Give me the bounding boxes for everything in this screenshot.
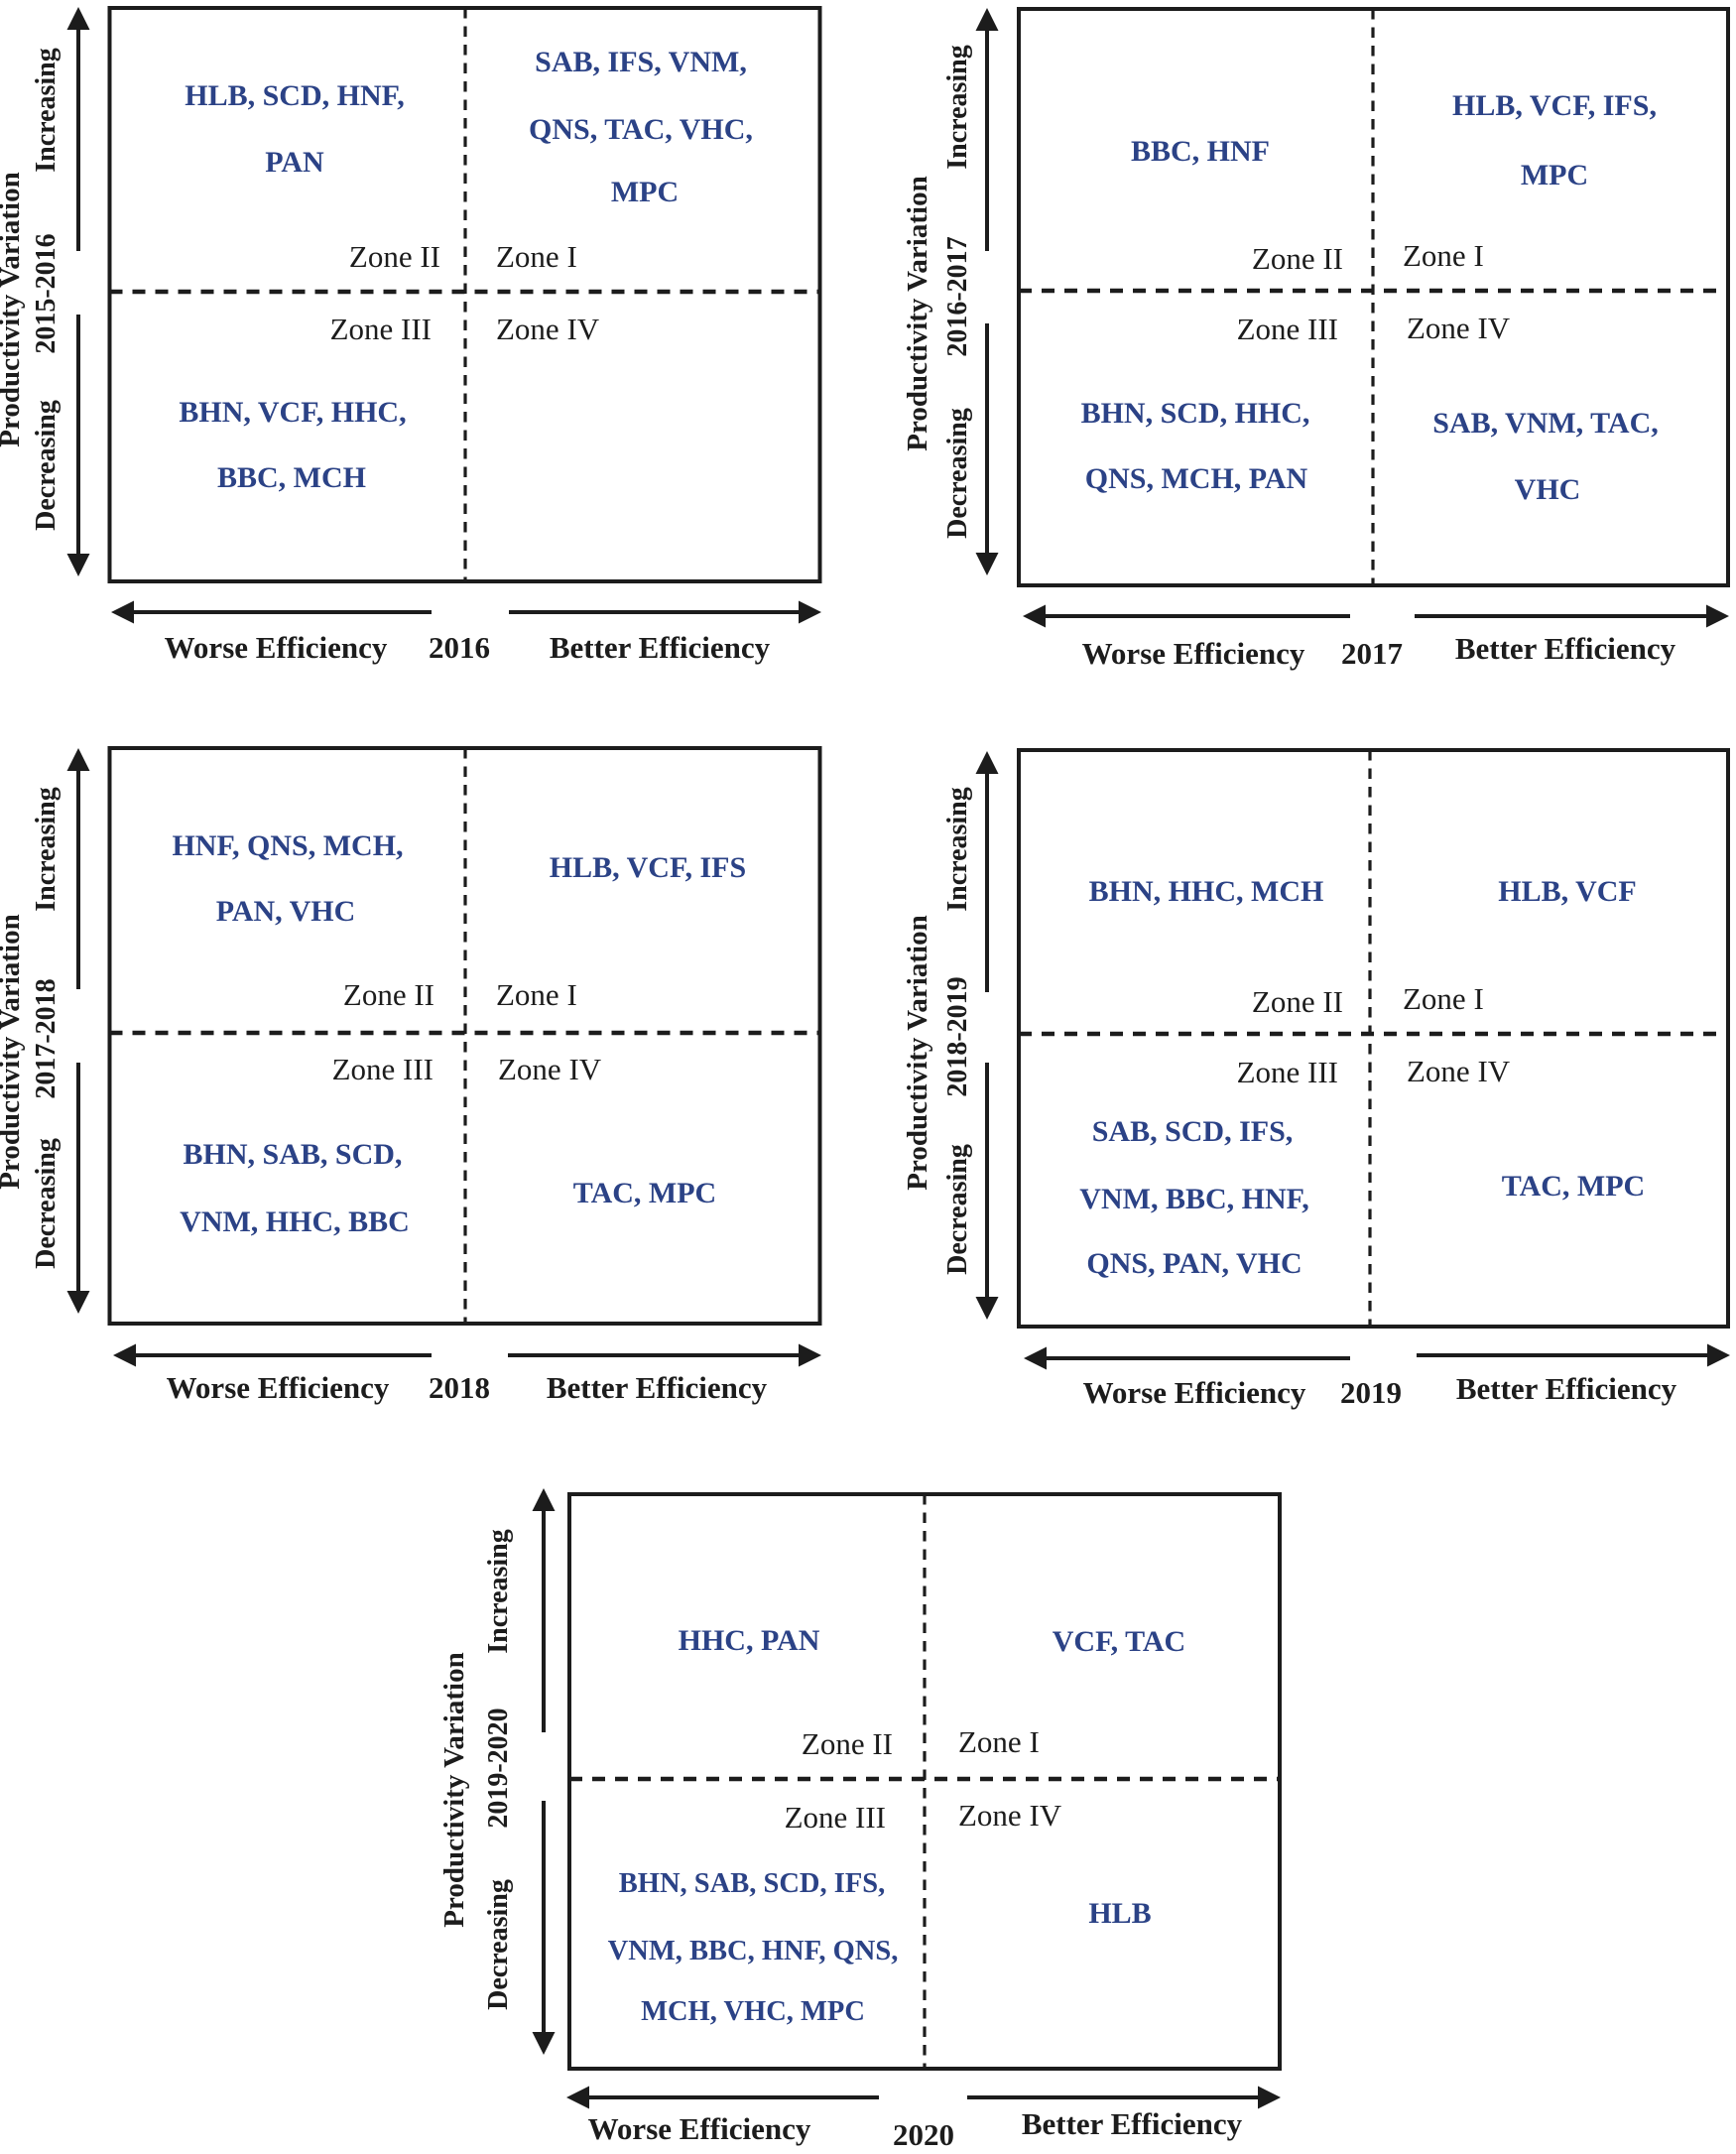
svg-text:Productivity Variation: Productivity Variation <box>438 1652 470 1927</box>
svg-text:Worse Efficiency: Worse Efficiency <box>1083 1375 1306 1410</box>
svg-text:Zone III: Zone III <box>330 312 432 346</box>
svg-text:VNM, BBC, HNF, QNS,: VNM, BBC, HNF, QNS, <box>608 1936 899 1966</box>
svg-text:Decreasing: Decreasing <box>31 1138 62 1269</box>
svg-text:2016: 2016 <box>429 630 490 665</box>
svg-text:Zone I: Zone I <box>496 977 577 1012</box>
svg-text:BHN, SAB, SCD,: BHN, SAB, SCD, <box>184 1138 403 1171</box>
svg-text:Zone I: Zone I <box>1403 981 1484 1016</box>
svg-text:Decreasing: Decreasing <box>942 408 973 539</box>
svg-text:BHN, HHC, MCH: BHN, HHC, MCH <box>1089 875 1324 908</box>
svg-text:Zone IV: Zone IV <box>496 312 600 346</box>
svg-text:QNS, PAN, VHC: QNS, PAN, VHC <box>1086 1247 1302 1280</box>
svg-text:Increasing: Increasing <box>31 787 62 912</box>
svg-text:Zone IV: Zone IV <box>498 1052 602 1086</box>
svg-text:2015-2016: 2015-2016 <box>31 233 62 353</box>
svg-text:Better Efficiency: Better Efficiency <box>1456 1371 1677 1406</box>
svg-text:Worse Efficiency: Worse Efficiency <box>588 2111 811 2146</box>
svg-text:TAC, MPC: TAC, MPC <box>573 1177 716 1209</box>
svg-text:Worse Efficiency: Worse Efficiency <box>1082 636 1305 671</box>
svg-text:Better Efficiency: Better Efficiency <box>1455 631 1676 666</box>
svg-text:Better Efficiency: Better Efficiency <box>550 630 771 665</box>
svg-text:MPC: MPC <box>1521 159 1588 191</box>
svg-text:HLB: HLB <box>1088 1897 1151 1930</box>
svg-text:Increasing: Increasing <box>942 45 973 170</box>
svg-text:2017-2018: 2017-2018 <box>31 978 62 1098</box>
svg-text:Zone I: Zone I <box>958 1724 1040 1759</box>
svg-text:MPC: MPC <box>611 176 679 208</box>
svg-text:Zone II: Zone II <box>1252 984 1343 1019</box>
svg-text:Better Efficiency: Better Efficiency <box>1022 2106 1243 2141</box>
svg-text:Zone III: Zone III <box>1237 312 1338 346</box>
svg-text:Better Efficiency: Better Efficiency <box>547 1370 768 1405</box>
svg-text:Productivity Variation: Productivity Variation <box>0 172 26 446</box>
svg-text:Zone II: Zone II <box>802 1726 893 1761</box>
svg-text:SAB, IFS, VNM,: SAB, IFS, VNM, <box>535 46 747 78</box>
svg-text:Zone III: Zone III <box>332 1052 434 1086</box>
svg-text:Productivity Variation: Productivity Variation <box>902 915 933 1190</box>
svg-text:2016-2017: 2016-2017 <box>942 236 973 356</box>
svg-text:VNM, BBC, HNF,: VNM, BBC, HNF, <box>1079 1183 1308 1215</box>
svg-text:SAB, SCD, IFS,: SAB, SCD, IFS, <box>1092 1115 1294 1148</box>
svg-text:Zone IV: Zone IV <box>1407 1054 1511 1088</box>
svg-text:Increasing: Increasing <box>483 1529 514 1654</box>
svg-text:VHC: VHC <box>1515 473 1581 506</box>
svg-text:2018: 2018 <box>429 1370 490 1405</box>
svg-text:2018-2019: 2018-2019 <box>942 976 973 1096</box>
svg-text:Productivity Variation: Productivity Variation <box>0 914 26 1189</box>
svg-text:BHN, VCF, HHC,: BHN, VCF, HHC, <box>179 396 406 429</box>
svg-text:Worse Efficiency: Worse Efficiency <box>167 1370 390 1405</box>
svg-text:Zone IV: Zone IV <box>1407 311 1511 345</box>
svg-text:Decreasing: Decreasing <box>942 1144 973 1275</box>
svg-text:TAC, MPC: TAC, MPC <box>1502 1170 1645 1203</box>
svg-text:Zone IV: Zone IV <box>958 1798 1062 1833</box>
svg-text:VCF, TAC: VCF, TAC <box>1053 1625 1185 1658</box>
svg-text:QNS, MCH, PAN: QNS, MCH, PAN <box>1085 462 1308 495</box>
svg-text:PAN, VHC: PAN, VHC <box>216 895 356 928</box>
svg-text:Decreasing: Decreasing <box>31 400 62 531</box>
svg-text:HLB, VCF, IFS: HLB, VCF, IFS <box>550 851 746 884</box>
svg-text:Zone II: Zone II <box>349 239 440 274</box>
svg-text:SAB, VNM, TAC,: SAB, VNM, TAC, <box>1432 407 1659 440</box>
svg-text:PAN: PAN <box>265 146 324 179</box>
svg-text:2017: 2017 <box>1341 636 1403 671</box>
svg-text:BHN, SCD, HHC,: BHN, SCD, HHC, <box>1081 397 1310 430</box>
svg-text:QNS, TAC, VHC,: QNS, TAC, VHC, <box>529 113 753 146</box>
svg-text:VNM, HHC, BBC: VNM, HHC, BBC <box>180 1205 410 1238</box>
svg-text:Zone II: Zone II <box>343 977 434 1012</box>
svg-text:HLB, VCF: HLB, VCF <box>1498 875 1636 908</box>
svg-text:Zone III: Zone III <box>1237 1055 1338 1089</box>
svg-text:Productivity Variation: Productivity Variation <box>902 176 933 450</box>
svg-text:Increasing: Increasing <box>31 48 62 173</box>
svg-text:Decreasing: Decreasing <box>483 1879 514 2010</box>
svg-text:HNF, QNS, MCH,: HNF, QNS, MCH, <box>172 829 403 862</box>
svg-text:HLB, VCF, IFS,: HLB, VCF, IFS, <box>1452 89 1657 122</box>
svg-text:BBC, HNF: BBC, HNF <box>1131 135 1270 168</box>
svg-text:BHN, SAB, SCD, IFS,: BHN, SAB, SCD, IFS, <box>619 1868 885 1899</box>
svg-text:Increasing: Increasing <box>942 787 973 912</box>
svg-text:2020: 2020 <box>893 2117 954 2152</box>
svg-text:Zone III: Zone III <box>785 1800 886 1835</box>
svg-text:MCH, VHC, MPC: MCH, VHC, MPC <box>641 1996 865 2027</box>
svg-text:2019: 2019 <box>1340 1375 1402 1410</box>
svg-text:HHC, PAN: HHC, PAN <box>679 1624 820 1657</box>
svg-text:Zone II: Zone II <box>1252 241 1343 276</box>
svg-text:2019-2020: 2019-2020 <box>483 1708 514 1828</box>
svg-text:Worse Efficiency: Worse Efficiency <box>165 630 388 665</box>
svg-text:Zone I: Zone I <box>496 239 577 274</box>
svg-text:BBC, MCH: BBC, MCH <box>217 461 366 494</box>
svg-text:Zone I: Zone I <box>1403 238 1484 273</box>
svg-text:HLB, SCD, HNF,: HLB, SCD, HNF, <box>185 79 404 112</box>
